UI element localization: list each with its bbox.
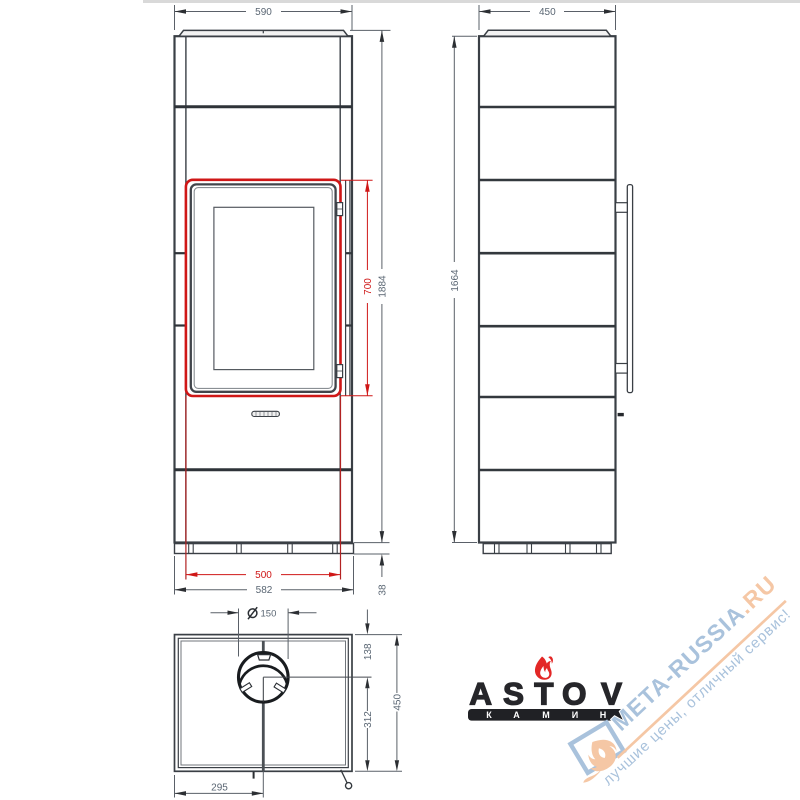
svg-text:М: М: [542, 710, 550, 720]
svg-text:И: И: [572, 710, 578, 720]
svg-text:T: T: [534, 676, 553, 712]
svg-text:295: 295: [211, 783, 228, 794]
svg-text:S: S: [503, 676, 524, 712]
svg-text:590: 590: [255, 7, 272, 18]
svg-text:А: А: [513, 710, 520, 720]
svg-text:38: 38: [377, 584, 388, 596]
svg-text:450: 450: [539, 7, 556, 18]
svg-text:1664: 1664: [450, 269, 461, 292]
svg-text:К: К: [486, 710, 492, 720]
svg-text:138: 138: [363, 643, 374, 660]
svg-text:A: A: [469, 676, 492, 712]
svg-text:150: 150: [261, 609, 277, 620]
svg-text:450: 450: [393, 694, 404, 711]
svg-text:O: O: [562, 676, 587, 712]
svg-text:700: 700: [363, 278, 374, 295]
svg-text:500: 500: [255, 570, 272, 581]
svg-text:Н: Н: [600, 710, 607, 720]
svg-text:582: 582: [256, 585, 273, 596]
svg-text:312: 312: [363, 711, 374, 728]
svg-text:1884: 1884: [378, 275, 389, 298]
